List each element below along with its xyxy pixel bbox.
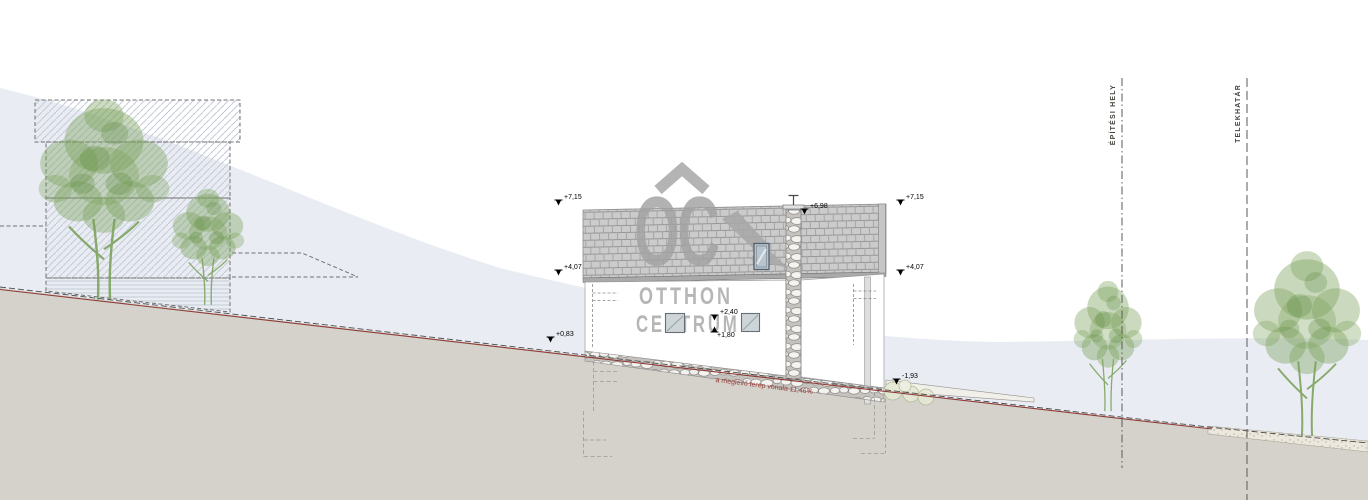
elevation-marker-icon: [554, 269, 563, 277]
elevation-marker-icon: [710, 314, 719, 322]
annotation-layer: +7,15 +4,07 +0,83 +7,15 +4,07 +6,98 +2,4…: [0, 0, 1368, 500]
elevation-marker-icon: [896, 199, 905, 207]
elevation-marker-icon: [800, 208, 809, 216]
elevation-marker-icon: [896, 269, 905, 277]
elevation-marker-icon: [546, 336, 555, 344]
building-site-label: ÉPÍTÉSI HELY: [1110, 84, 1117, 145]
plot-boundary-label: TELEKHATÁR: [1235, 84, 1242, 143]
elevation-marker-icon: [892, 378, 901, 386]
existing-terrain-note: a meglévő terep vonala 11,46%: [715, 377, 813, 396]
elevation-marker-icon: [554, 199, 563, 207]
elevation-drawing-canvas: OC OTTHON CENTRUM: [0, 0, 1368, 500]
